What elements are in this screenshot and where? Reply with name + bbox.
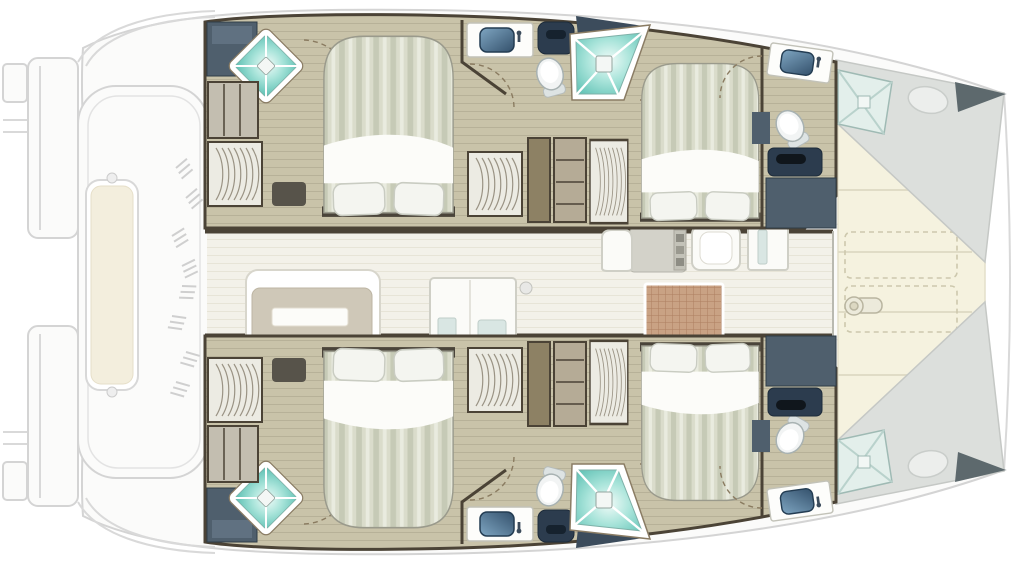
deck-light [520, 282, 532, 294]
salon [205, 224, 833, 352]
nav-station [602, 228, 686, 272]
port-hull [205, 15, 836, 228]
starboard-hull [205, 336, 836, 549]
port-swim-platform [3, 58, 78, 238]
floor-plan-canvas [0, 0, 1024, 564]
starboard-swim-platform [3, 326, 78, 506]
bench-end-fitting [107, 173, 117, 183]
cockpit [78, 86, 208, 478]
windlass-icon [845, 297, 882, 315]
cabinet-glass [758, 230, 767, 264]
galley-cabinet [748, 224, 788, 270]
bow-beam-arc [1004, 93, 1010, 471]
bench-end-fitting [107, 387, 117, 397]
galley-modules [692, 224, 788, 270]
nav-seat [602, 230, 632, 271]
cockpit-bench [86, 173, 138, 397]
foredeck [836, 60, 1006, 504]
table-inset [272, 308, 348, 326]
catamaran-deck-plan [0, 0, 1024, 564]
galley-sink-lid [700, 232, 732, 264]
